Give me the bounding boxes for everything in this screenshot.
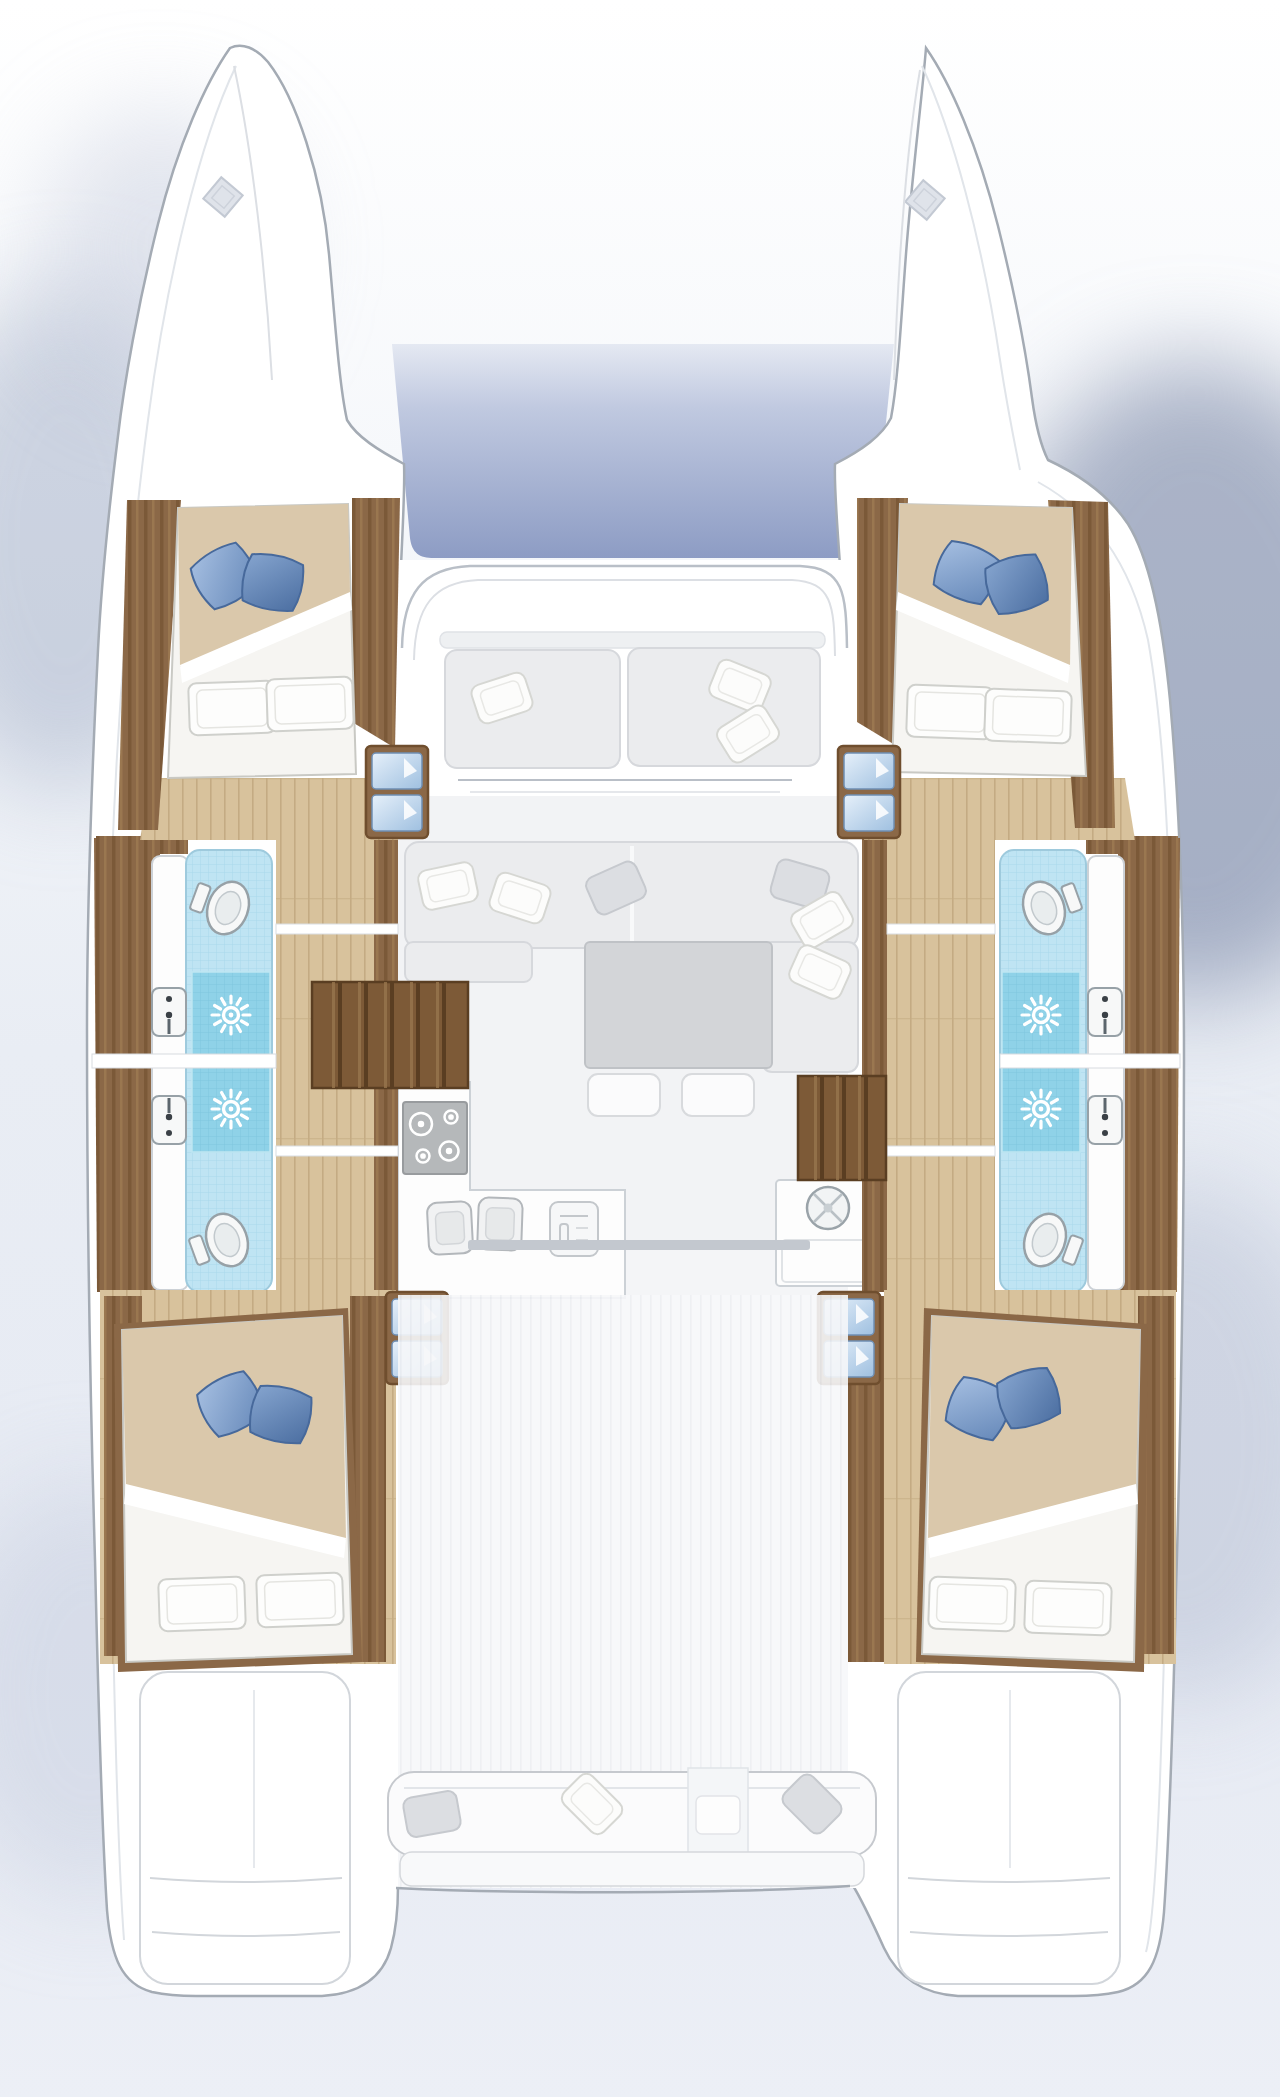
bed-pillow [984,689,1072,744]
port-forward-cabin [118,498,428,840]
aft-bench-step-cushion [696,1796,740,1834]
cockpit-door-track [468,1240,810,1250]
starboard-door-threshold-1 [887,924,995,934]
port-companionway-stairs [312,982,468,1088]
forward-bench-backrest [440,632,825,648]
entry-steps-icon [838,746,900,838]
starboard-companionway-stairs [798,1076,886,1180]
bed-pillow [188,681,276,736]
aft-bench-pillow-gray [402,1790,462,1839]
entry-steps-icon [366,746,428,838]
port-door-threshold-2 [276,1146,398,1156]
catamaran-floorplan [0,0,1280,2097]
sink-icon [152,988,186,1036]
starboard-aft-bed [916,1308,1148,1672]
starboard-vanity-counter [1088,856,1124,1290]
forward-bench-cushion-left [445,650,620,768]
salon-stool-left [588,1074,660,1116]
starboard-aft-cabin [818,1290,1176,1672]
bed-pillow [928,1577,1016,1632]
bed-pillow [256,1573,344,1628]
port-vanity-counter [152,856,188,1290]
sink-icon [1088,1096,1122,1144]
port-bathrooms [92,836,276,1292]
port-door-threshold-1 [276,924,398,934]
forward-cockpit [440,632,825,768]
bed-pillow [906,685,994,740]
bed-pillow [266,677,354,732]
aft-cockpit [388,1295,876,1888]
starboard-bathrooms [1000,836,1180,1292]
salon-table [585,942,772,1068]
starboard-door-threshold-2 [887,1146,995,1156]
sofa-left-wing [405,942,532,982]
starboard-heads-divider-wall [1000,1054,1180,1068]
starboard-forward-bed [892,504,1086,776]
sink-icon [1088,988,1122,1036]
bed-pillow [1024,1581,1112,1636]
bow-trampoline [392,344,894,558]
bed-pillow [158,1577,246,1632]
salon-stool-right [682,1074,754,1116]
starboard-forward-cabin [838,498,1135,840]
starboard-corridor-wall [862,838,887,1292]
sink-icon [152,1096,186,1144]
port-aft-cabin [100,1290,448,1672]
starboard-corridor [862,786,995,1292]
port-heads-divider-wall [92,1054,276,1068]
port-forward-bed [168,504,356,778]
bar-sink-icon [807,1187,849,1229]
port-forward-cabin-floor [140,778,398,840]
aft-bench-apron [400,1852,864,1886]
port-forward-cabin-inner-wall [352,498,400,748]
port-aft-bed [114,1308,362,1672]
port-stern-platform [140,1672,350,1984]
